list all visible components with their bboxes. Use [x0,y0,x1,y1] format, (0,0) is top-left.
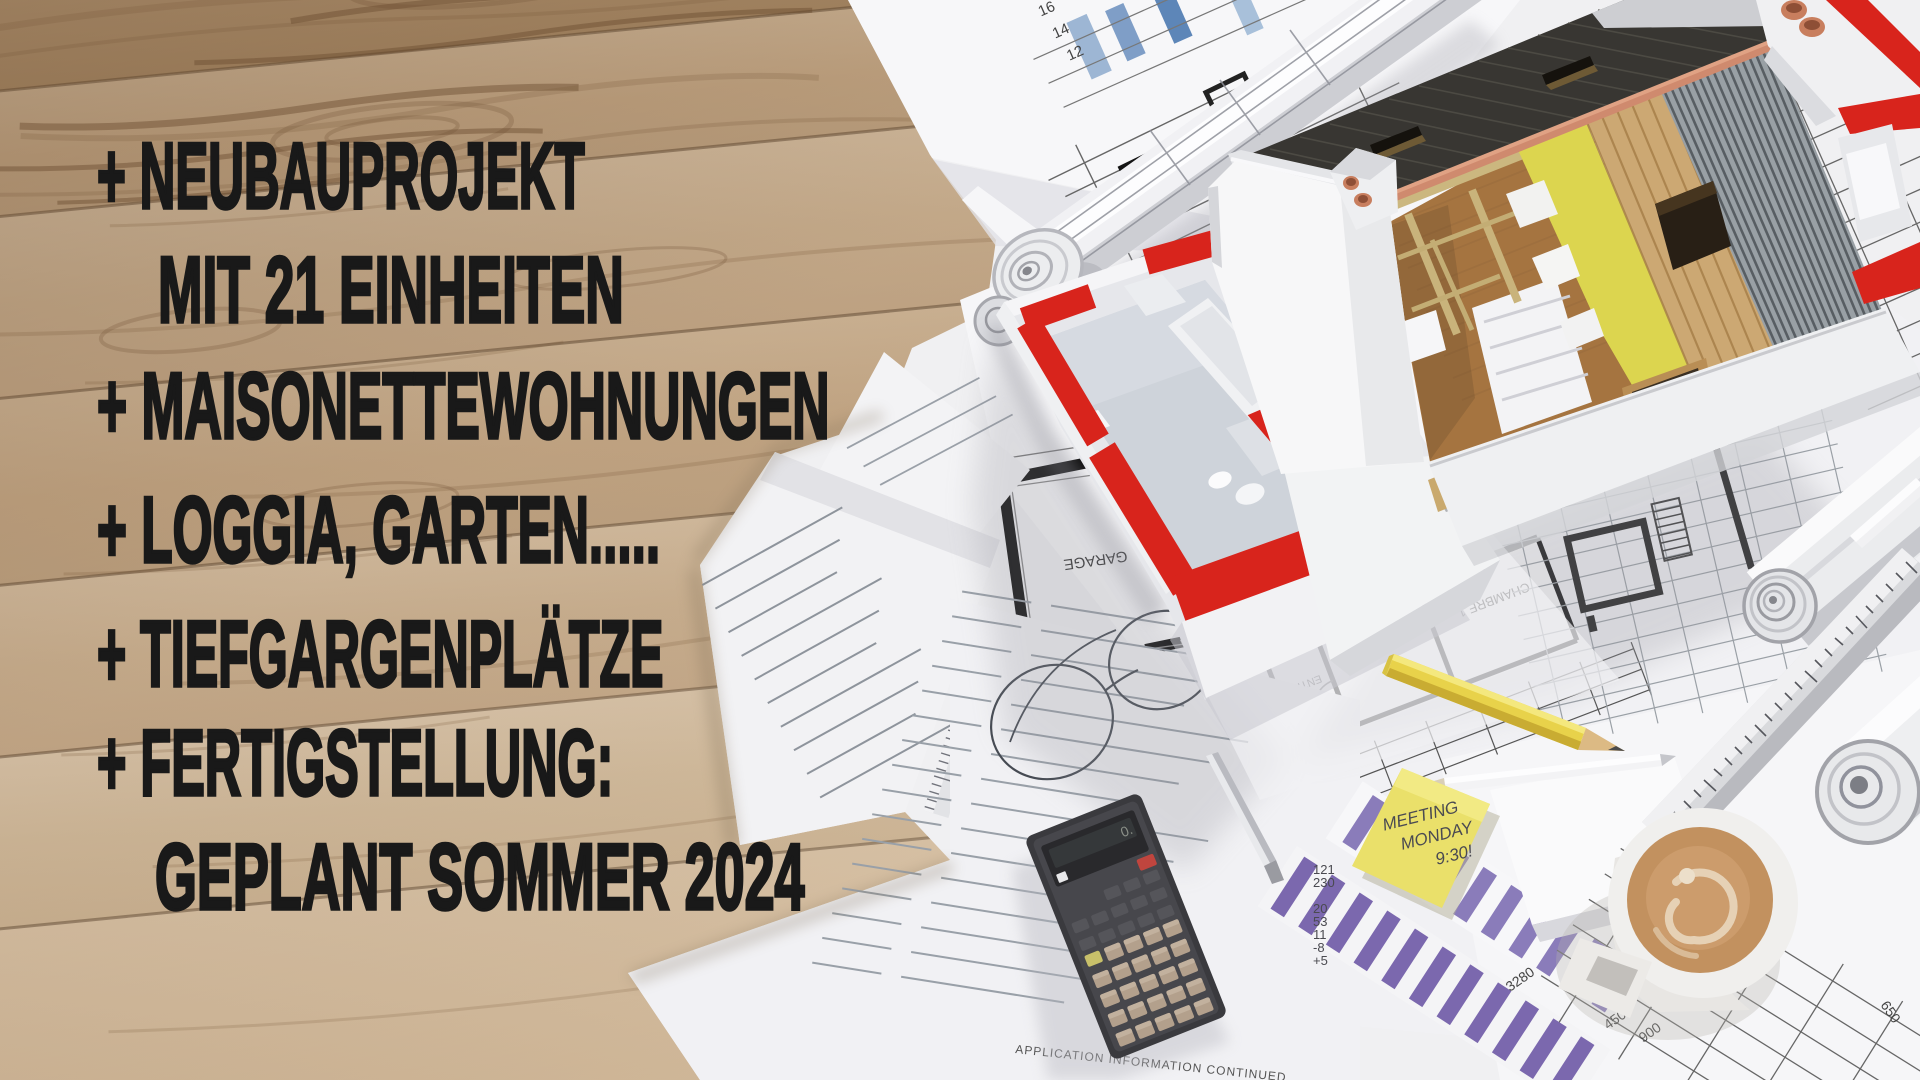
svg-text:230: 230 [1313,875,1335,890]
svg-text:+5: +5 [1313,953,1328,968]
